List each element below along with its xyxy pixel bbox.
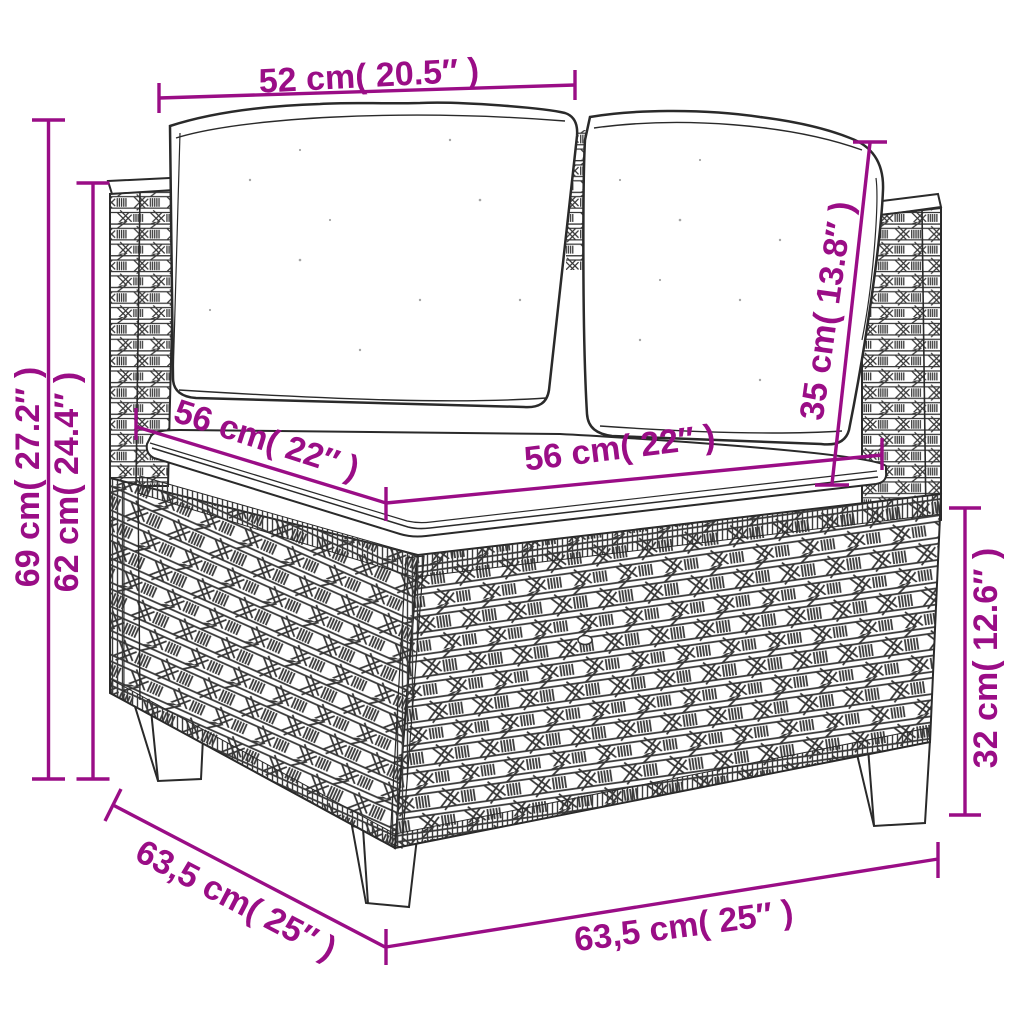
svg-text:32 cm( 12.6″ ): 32 cm( 12.6″ ) xyxy=(967,548,1005,768)
svg-text:69 cm( 27.2″ ): 69 cm( 27.2″ ) xyxy=(9,367,47,587)
svg-text:62 cm( 24.4″ ): 62 cm( 24.4″ ) xyxy=(48,372,86,592)
